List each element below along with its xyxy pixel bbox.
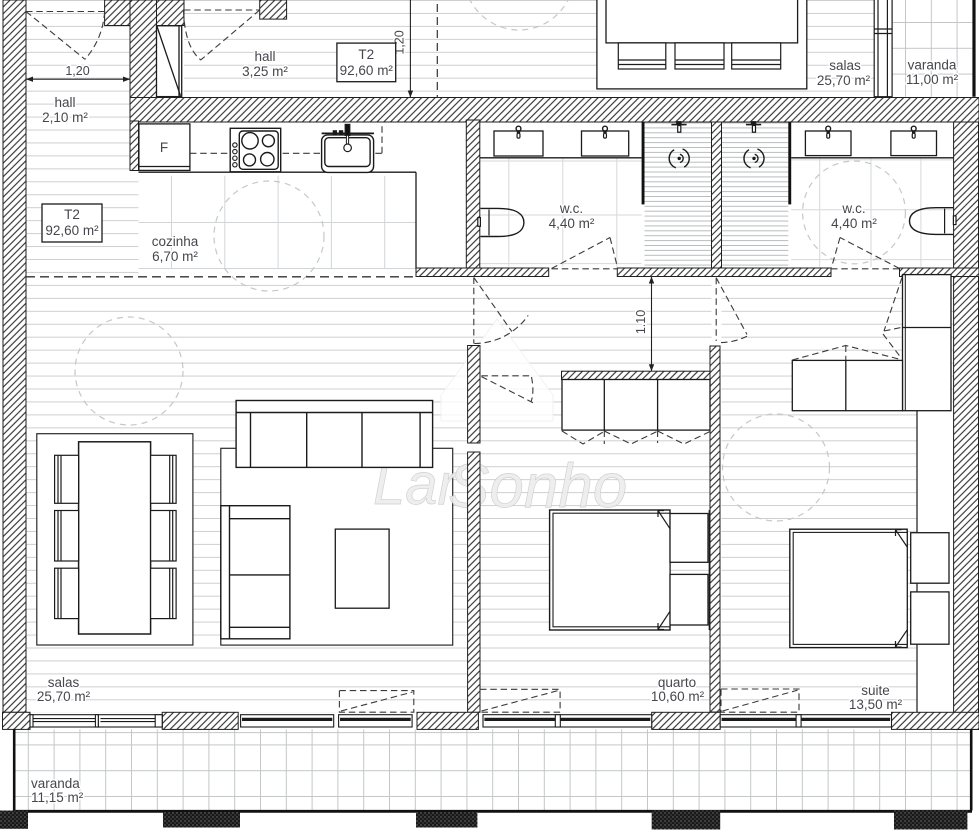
- svg-text:92,60 m²: 92,60 m²: [340, 63, 394, 78]
- svg-text:10,60 m²: 10,60 m²: [651, 689, 705, 704]
- svg-text:2,10 m²: 2,10 m²: [42, 110, 88, 125]
- svg-text:hall: hall: [254, 49, 275, 64]
- svg-text:w.c.: w.c.: [559, 201, 583, 216]
- svg-text:F: F: [160, 140, 168, 155]
- svg-text:quarto: quarto: [658, 675, 696, 690]
- svg-text:salas: salas: [829, 58, 861, 73]
- svg-text:11,00 m²: 11,00 m²: [906, 72, 959, 87]
- svg-text:3,25 m²: 3,25 m²: [242, 64, 288, 79]
- svg-text:cozinha: cozinha: [152, 234, 199, 249]
- svg-text:11,15 m²: 11,15 m²: [31, 790, 84, 805]
- svg-text:4,40 m²: 4,40 m²: [549, 216, 595, 231]
- svg-text:w.c.: w.c.: [841, 201, 865, 216]
- svg-text:4,40 m²: 4,40 m²: [831, 216, 877, 231]
- svg-text:salas: salas: [48, 675, 80, 690]
- svg-text:13,50 m²: 13,50 m²: [849, 697, 903, 712]
- svg-text:6,70 m²: 6,70 m²: [152, 249, 198, 264]
- svg-text:hall: hall: [54, 95, 75, 110]
- svg-text:25,70 m²: 25,70 m²: [817, 73, 871, 88]
- svg-text:suite: suite: [861, 683, 890, 698]
- svg-text:1.10: 1.10: [634, 310, 648, 334]
- svg-text:varanda: varanda: [908, 58, 957, 73]
- svg-text:varanda: varanda: [31, 776, 80, 791]
- svg-text:T2: T2: [358, 47, 374, 62]
- svg-text:1,20: 1,20: [65, 64, 89, 78]
- svg-text:25,70 m²: 25,70 m²: [37, 689, 91, 704]
- svg-text:T2: T2: [64, 207, 80, 222]
- svg-text:92,60 m²: 92,60 m²: [45, 223, 99, 238]
